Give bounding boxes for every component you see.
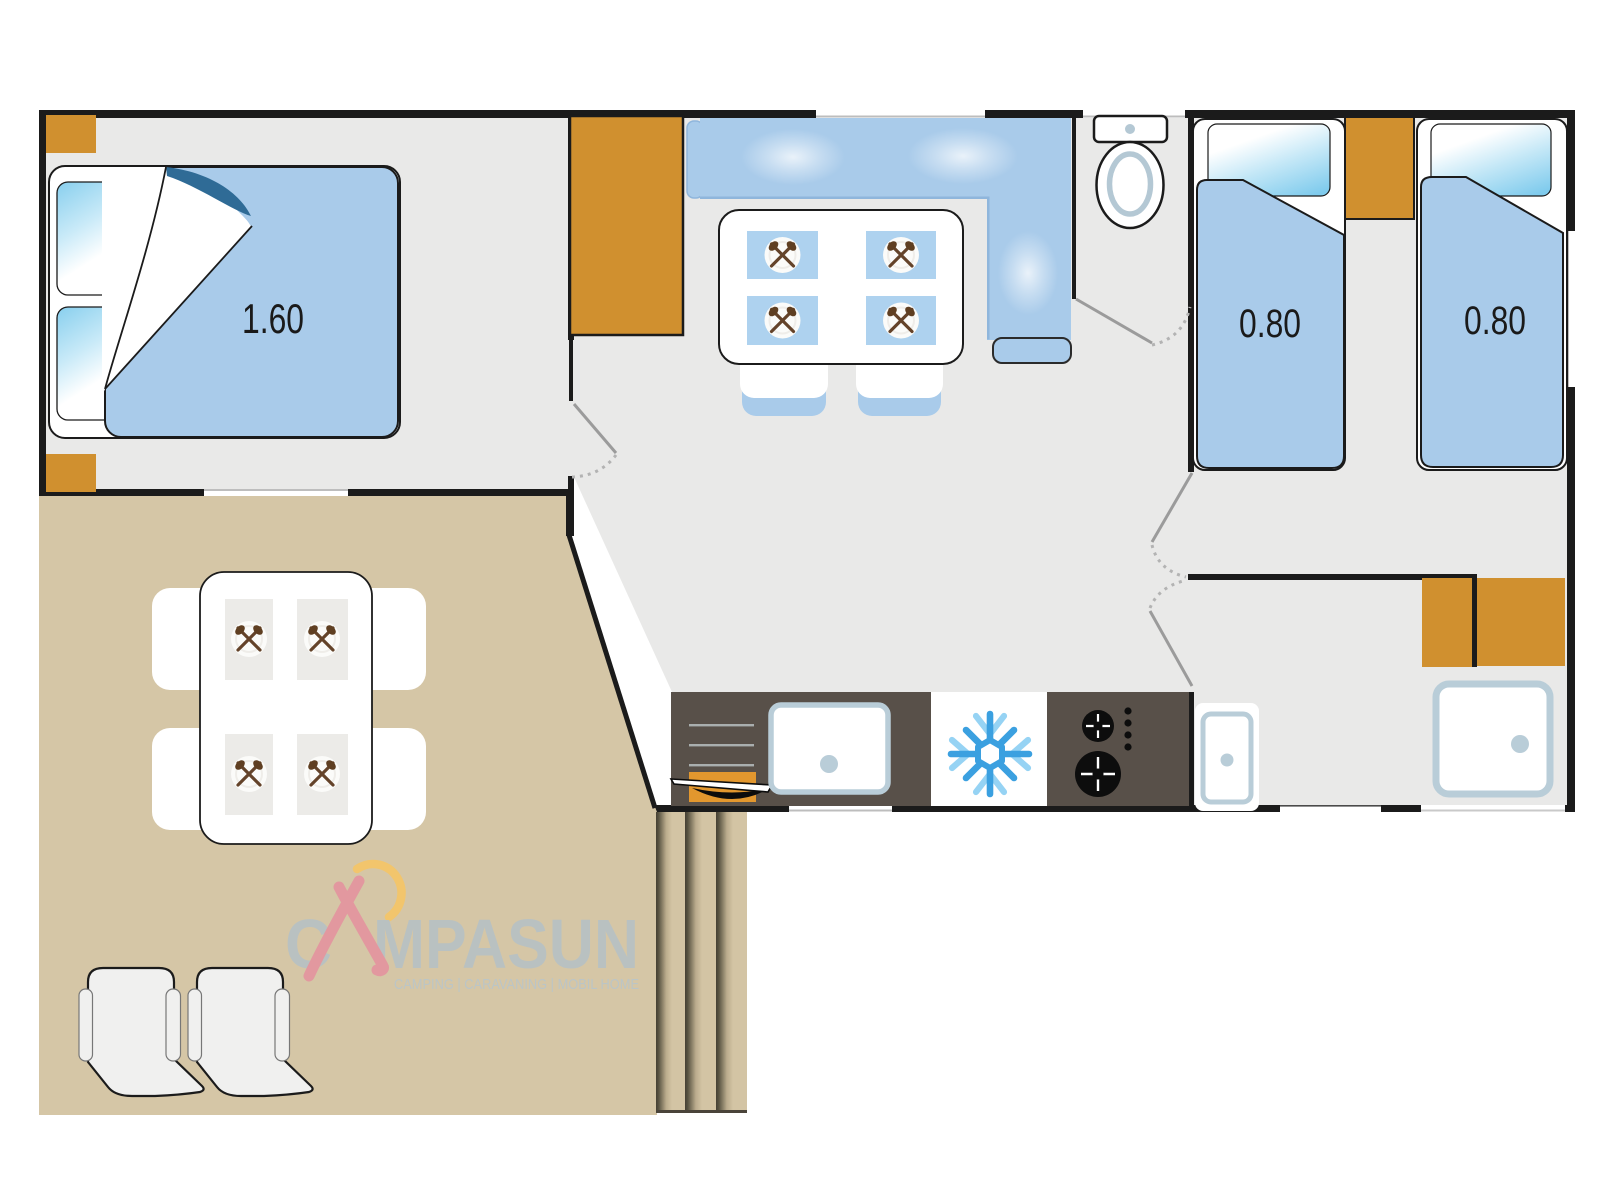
svg-text:0.80: 0.80 [1464, 299, 1526, 343]
svg-text:CAMPING | CARAVANING | MOBIL H: CAMPING | CARAVANING | MOBIL HOME [394, 977, 639, 993]
svg-text:1.60: 1.60 [242, 295, 304, 342]
svg-text:MPASUN: MPASUN [373, 905, 639, 983]
svg-text:0.80: 0.80 [1239, 302, 1301, 346]
